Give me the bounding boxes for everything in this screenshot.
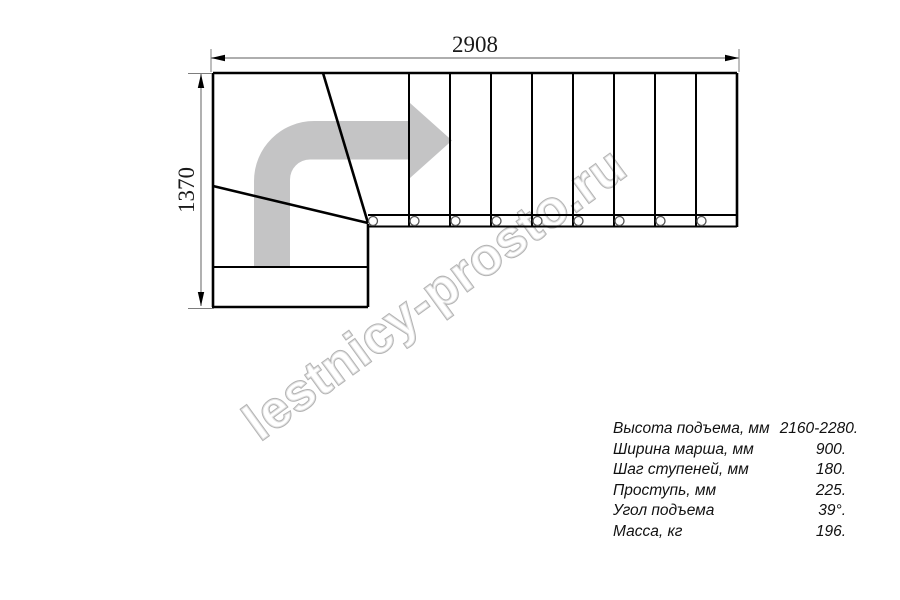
spec-row-step-pitch: Шаг ступеней, мм 180. <box>613 460 846 481</box>
spec-table: Высота подъема, мм 2160-2280. Ширина мар… <box>613 419 846 542</box>
baluster-marker <box>410 217 419 226</box>
baluster-marker <box>369 217 378 226</box>
direction-arrow <box>254 103 452 266</box>
spec-label: Масса, кг <box>613 522 682 543</box>
baluster-marker <box>574 217 583 226</box>
dim-arrow-right <box>725 55 739 61</box>
baluster-marker <box>656 217 665 226</box>
dim-arrow-bottom <box>198 292 204 306</box>
spec-label: Угол подъема <box>613 501 714 522</box>
spec-value: 225. <box>806 481 846 502</box>
spec-row-mass: Масса, кг 196. <box>613 522 846 543</box>
dim-arrow-left <box>211 55 225 61</box>
dim-arrow-top <box>198 74 204 88</box>
spec-row-lift-height: Высота подъема, мм 2160-2280. <box>613 419 846 440</box>
dimension-height: 1370 <box>174 74 214 309</box>
spec-value: 180. <box>806 460 846 481</box>
spec-value: 900. <box>806 440 846 461</box>
spec-row-rise-angle: Угол подъема 39°. <box>613 501 846 522</box>
spec-label: Проступь, мм <box>613 481 716 502</box>
watermark-text: lestnicy-prosto.ru <box>233 136 637 452</box>
stair-drawing-page: lestnicy-prosto.ru <box>0 0 900 600</box>
winder-edge-shallow <box>213 186 368 223</box>
spec-row-tread: Проступь, мм 225. <box>613 481 846 502</box>
dim-label-height: 1370 <box>174 167 199 213</box>
spec-value: 2160-2280. <box>770 419 858 440</box>
dim-label-width: 2908 <box>452 32 498 57</box>
spec-label: Ширина марша, мм <box>613 440 754 461</box>
baluster-marker <box>697 217 706 226</box>
spec-value: 196. <box>806 522 846 543</box>
spec-row-flight-width: Ширина марша, мм 900. <box>613 440 846 461</box>
spec-label: Высота подъема, мм <box>613 419 770 440</box>
baluster-marker <box>615 217 624 226</box>
spec-value: 39°. <box>808 501 846 522</box>
baluster-marker <box>492 217 501 226</box>
baluster-marker <box>533 217 542 226</box>
dimension-width: 2908 <box>211 32 739 72</box>
baluster-marker <box>451 217 460 226</box>
spec-label: Шаг ступеней, мм <box>613 460 749 481</box>
